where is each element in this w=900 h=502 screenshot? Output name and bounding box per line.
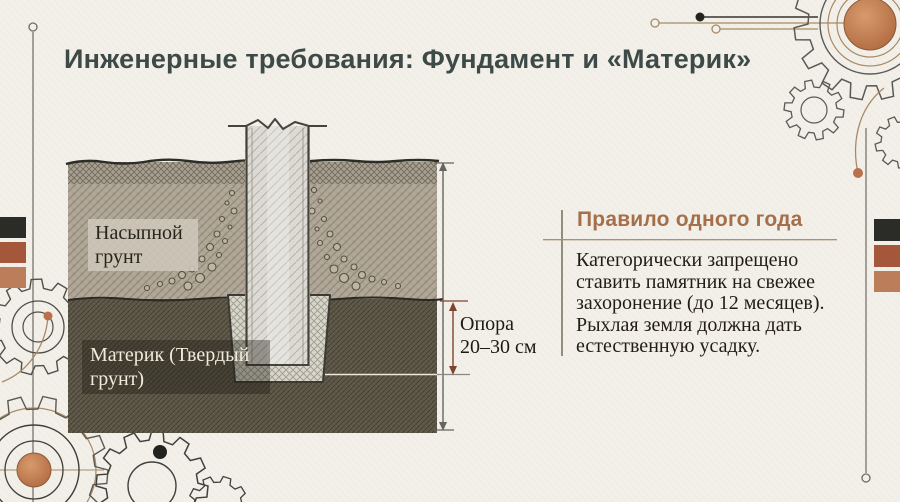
topsoil-label: Насыпной грунт <box>88 219 198 271</box>
support-dimension-line1: Опора <box>460 313 537 336</box>
slide: Инженерные требования: Фундамент и «Мате… <box>0 0 900 502</box>
rule-panel-horizontal-rule <box>543 239 837 240</box>
page-title: Инженерные требования: Фундамент и «Мате… <box>64 44 844 75</box>
gear-cluster-top-right <box>784 0 900 178</box>
left-guide-line-decor <box>29 23 37 502</box>
swatch-stack-left <box>0 217 26 288</box>
right-guide-line-decor <box>862 128 870 482</box>
hard-ground-label: Материк (Твердый грунт) <box>82 340 270 394</box>
foundation-diagram <box>62 118 542 458</box>
support-dimension-label: Опора 20–30 см <box>460 313 537 359</box>
rule-panel-body: Категорически запрещено ставить памятник… <box>576 250 832 358</box>
support-dimension-line2: 20–30 см <box>460 336 537 359</box>
rule-panel-vertical-rule <box>561 210 563 356</box>
swatch-stack-right <box>874 219 900 292</box>
rule-panel-heading: Правило одного года <box>577 208 877 232</box>
